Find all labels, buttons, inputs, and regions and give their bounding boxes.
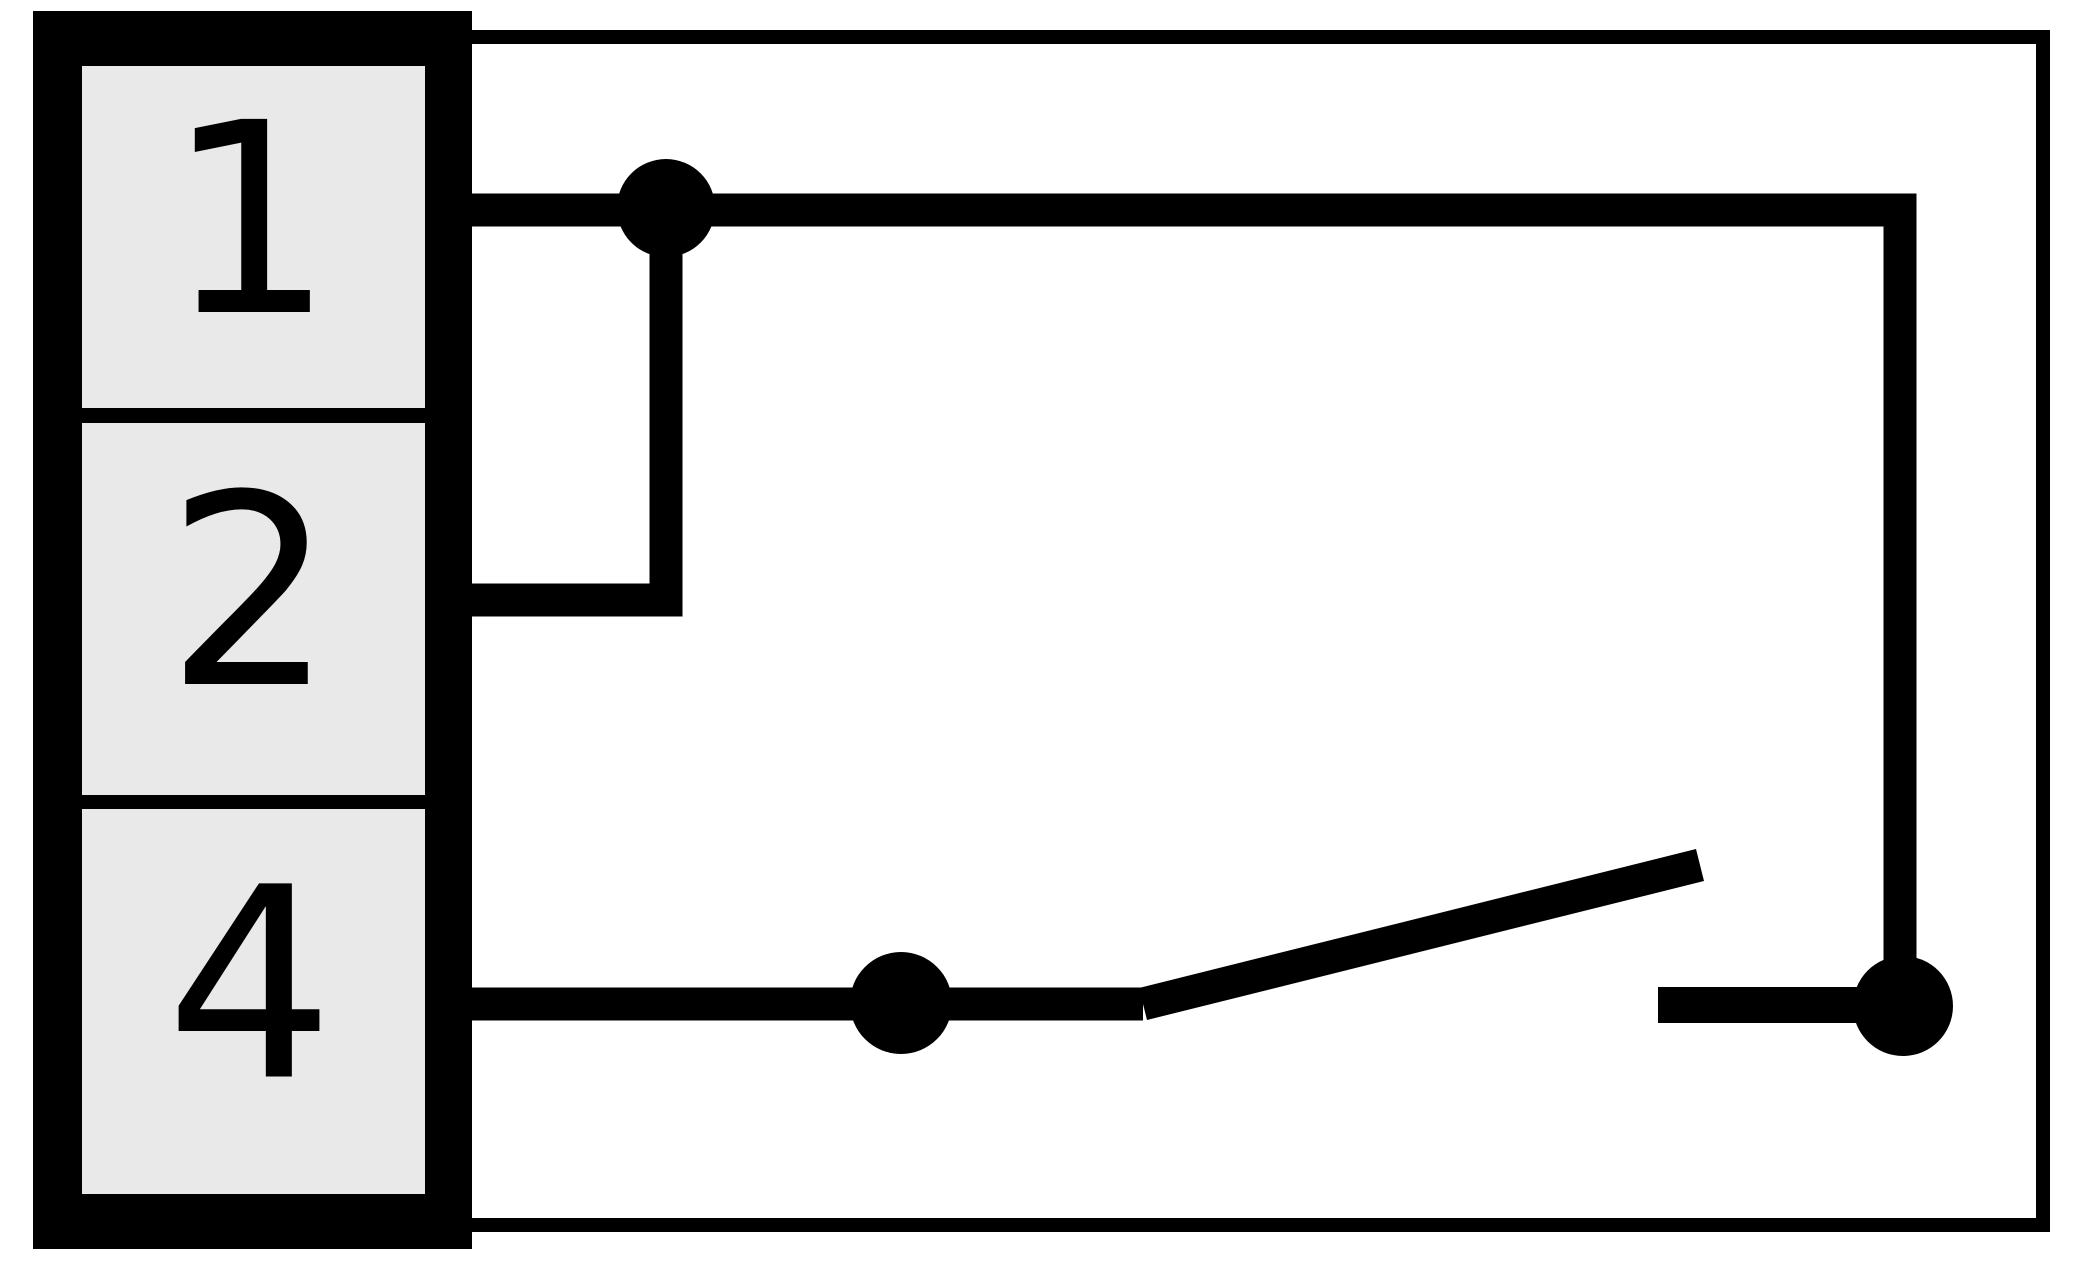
terminal-label-4: 4 <box>166 832 335 1140</box>
fixed-contact-dot <box>1853 956 1953 1056</box>
wire-terminal-2 <box>472 210 666 600</box>
switch-blade <box>1143 865 1700 1004</box>
wiring-diagram: 124 <box>0 0 2077 1266</box>
pole-contact-dot <box>850 952 952 1054</box>
terminal-label-1: 1 <box>166 67 335 375</box>
junction-dot <box>617 159 715 257</box>
terminal-label-2: 2 <box>166 439 335 747</box>
schematic-canvas: 124 <box>0 0 2077 1266</box>
